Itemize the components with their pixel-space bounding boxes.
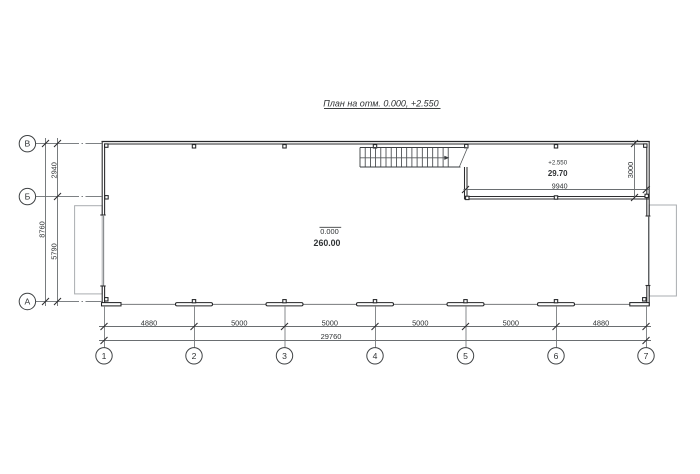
svg-text:8760: 8760 [38, 221, 47, 237]
svg-text:5: 5 [463, 351, 468, 361]
svg-text:1: 1 [102, 351, 107, 361]
svg-text:9940: 9940 [552, 183, 568, 191]
svg-text:29.70: 29.70 [548, 169, 568, 178]
svg-text:В: В [25, 139, 31, 149]
svg-text:0.000: 0.000 [320, 227, 339, 236]
svg-text:3000: 3000 [626, 162, 635, 178]
svg-text:3: 3 [282, 351, 287, 361]
svg-text:4880: 4880 [141, 318, 157, 327]
svg-text:4: 4 [373, 351, 378, 361]
svg-text:5000: 5000 [231, 318, 247, 327]
svg-text:+2.550: +2.550 [548, 159, 567, 166]
svg-text:2940: 2940 [50, 162, 59, 178]
svg-text:2: 2 [192, 351, 197, 361]
svg-text:29760: 29760 [321, 332, 342, 341]
svg-text:5000: 5000 [322, 318, 338, 327]
svg-text:А: А [25, 297, 31, 307]
svg-text:5000: 5000 [412, 318, 428, 327]
svg-text:5000: 5000 [503, 318, 519, 327]
svg-text:План на отм. 0.000, +2.550: План на отм. 0.000, +2.550 [323, 99, 438, 109]
svg-text:Б: Б [25, 192, 31, 202]
svg-text:5790: 5790 [50, 243, 59, 259]
svg-text:260.00: 260.00 [314, 238, 341, 248]
svg-text:4880: 4880 [593, 318, 609, 327]
svg-text:6: 6 [554, 351, 559, 361]
svg-text:7: 7 [644, 351, 649, 361]
